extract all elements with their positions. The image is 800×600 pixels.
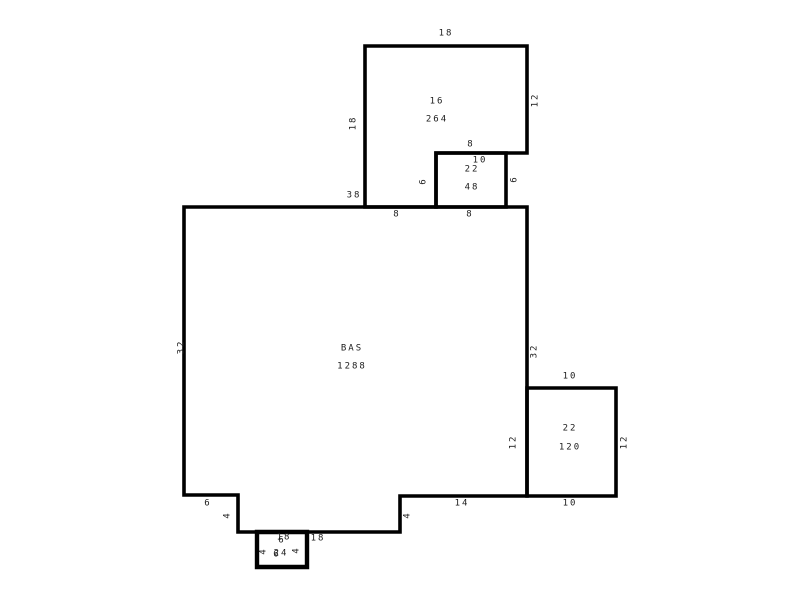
dim-upper-right: 12	[532, 93, 541, 108]
dim-base-left: 32	[178, 340, 187, 355]
dim-upper-bottom: 8	[393, 211, 400, 220]
room-code-upper: 16	[430, 98, 445, 107]
dim-small-right: 6	[511, 175, 520, 182]
dim-small-left: 6	[420, 177, 429, 184]
dim-right-room-left: 12	[510, 435, 519, 450]
dim-stoop-right: 4	[293, 546, 302, 553]
dim-base-step-left: 4	[224, 511, 233, 518]
dim-small-bottom: 8	[466, 211, 473, 220]
dim-stoop-top: 6	[278, 537, 285, 546]
dim-base-right: 32	[531, 344, 540, 359]
dim-base-bottom-mid: 18	[311, 535, 326, 544]
dim-stoop-bottom: 6	[273, 551, 280, 560]
dim-right-room-top: 10	[563, 373, 578, 382]
room-code-base: BAS	[341, 345, 363, 354]
floor-plan-sketch: 18 18 12 8 10 16 264 8 6 6 8 22 48 38 32…	[0, 0, 800, 600]
dim-base-bottom-left: 6	[204, 500, 211, 509]
dim-right-room-right: 12	[621, 435, 630, 450]
room-area-base: 1288	[337, 363, 367, 372]
dim-upper-top: 18	[439, 30, 454, 39]
dim-upper-left: 18	[350, 116, 359, 131]
dim-right-room-bottom: 10	[563, 500, 578, 509]
dim-small-top: 8	[467, 141, 474, 150]
room-area-upper: 264	[426, 116, 448, 125]
dim-base-top: 38	[347, 192, 362, 201]
room-code-small: 22	[465, 166, 480, 175]
dim-base-step-right: 4	[404, 511, 413, 518]
room-area-right-room: 120	[559, 444, 581, 453]
dim-base-bottom-right: 14	[455, 500, 470, 509]
room-area-small: 48	[465, 184, 480, 193]
sketch-canvas	[0, 0, 800, 600]
room-code-right-room: 22	[563, 425, 578, 434]
dim-stoop-left: 4	[260, 547, 269, 554]
